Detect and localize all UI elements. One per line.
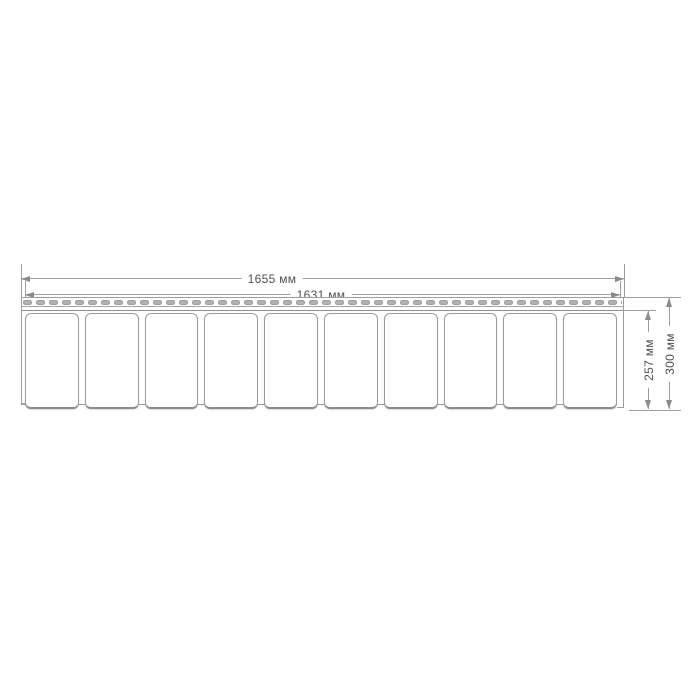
perforation-dash — [283, 300, 292, 305]
perforation-dash — [270, 300, 279, 305]
perforation-dashes — [23, 300, 622, 305]
dimension-label-outer-width: 1655 мм — [242, 272, 303, 286]
perforation-dash — [452, 300, 461, 305]
dimension-arrow-up-icon — [645, 311, 651, 320]
perforation-dash — [387, 300, 396, 305]
perforation-dash — [49, 300, 58, 305]
perforation-dash — [296, 300, 305, 305]
perforation-dash — [413, 300, 422, 305]
panel-section — [25, 313, 79, 409]
perforation-dash — [348, 300, 357, 305]
panel-sections — [25, 313, 617, 409]
dimension-label-inner-height: 257 мм — [642, 332, 656, 388]
perforation-dash — [322, 300, 331, 305]
perforation-dash — [257, 300, 266, 305]
perforation-dash — [127, 300, 136, 305]
perforation-dash — [569, 300, 578, 305]
panel-right-lip — [617, 311, 624, 408]
dimension-outer-width: 1655 мм — [21, 278, 624, 279]
perforation-dash — [478, 300, 487, 305]
dimension-outer-height: 300 мм — [669, 298, 670, 409]
perforation-dash — [140, 300, 149, 305]
strip-lower-line — [22, 306, 623, 307]
perforation-dash — [192, 300, 201, 305]
panel-section — [563, 313, 617, 409]
perforation-dash — [179, 300, 188, 305]
perforation-dash — [101, 300, 110, 305]
perforation-dash — [218, 300, 227, 305]
perforation-dash — [75, 300, 84, 305]
dimension-arrow-down-icon — [645, 400, 651, 409]
dimension-arrow-left-icon — [21, 276, 30, 282]
dimension-label-outer-height: 300 мм — [663, 326, 677, 382]
panel-section — [324, 313, 378, 409]
perforation-dash — [244, 300, 253, 305]
panel-section — [444, 313, 498, 409]
perforation-dash — [426, 300, 435, 305]
perforation-dash — [231, 300, 240, 305]
extension-line-right-outer — [624, 264, 625, 298]
perforation-dash — [608, 300, 617, 305]
nail-hem-strip — [21, 297, 624, 311]
perforation-dash — [517, 300, 526, 305]
perforation-dash — [621, 300, 622, 305]
drawing-canvas: 1655 мм 1631 мм 257 мм 300 мм — [0, 0, 700, 700]
perforation-dash — [309, 300, 318, 305]
perforation-dash — [36, 300, 45, 305]
panel-section — [503, 313, 557, 409]
panel-section — [264, 313, 318, 409]
perforation-dash — [62, 300, 71, 305]
perforation-dash — [595, 300, 604, 305]
perforation-dash — [114, 300, 123, 305]
dimension-inner-width: 1631 мм — [25, 294, 620, 295]
dimension-arrow-down-icon — [666, 400, 672, 409]
perforation-dash — [361, 300, 370, 305]
perforation-dash — [439, 300, 448, 305]
panel-section — [384, 313, 438, 409]
perforation-dash — [400, 300, 409, 305]
panel-section — [85, 313, 139, 409]
perforation-dash — [530, 300, 539, 305]
perforation-dash — [335, 300, 344, 305]
perforation-dash — [374, 300, 383, 305]
dimension-arrow-right-icon — [615, 276, 624, 282]
perforation-dash — [504, 300, 513, 305]
perforation-dash — [88, 300, 97, 305]
perforation-dash — [205, 300, 214, 305]
strip-bottom-edge — [22, 310, 623, 311]
perforation-dash — [153, 300, 162, 305]
extension-line-bottom-right — [629, 410, 681, 411]
perforation-dash — [465, 300, 474, 305]
perforation-dash — [582, 300, 591, 305]
perforation-dash — [23, 300, 32, 305]
panel-section — [145, 313, 199, 409]
dimension-arrow-up-icon — [666, 298, 672, 307]
perforation-dash — [491, 300, 500, 305]
extension-line-right-inner — [620, 281, 621, 298]
panel-section — [204, 313, 258, 409]
perforation-dash — [556, 300, 565, 305]
perforation-dash — [543, 300, 552, 305]
dimension-inner-height: 257 мм — [648, 311, 649, 409]
perforation-dash — [166, 300, 175, 305]
